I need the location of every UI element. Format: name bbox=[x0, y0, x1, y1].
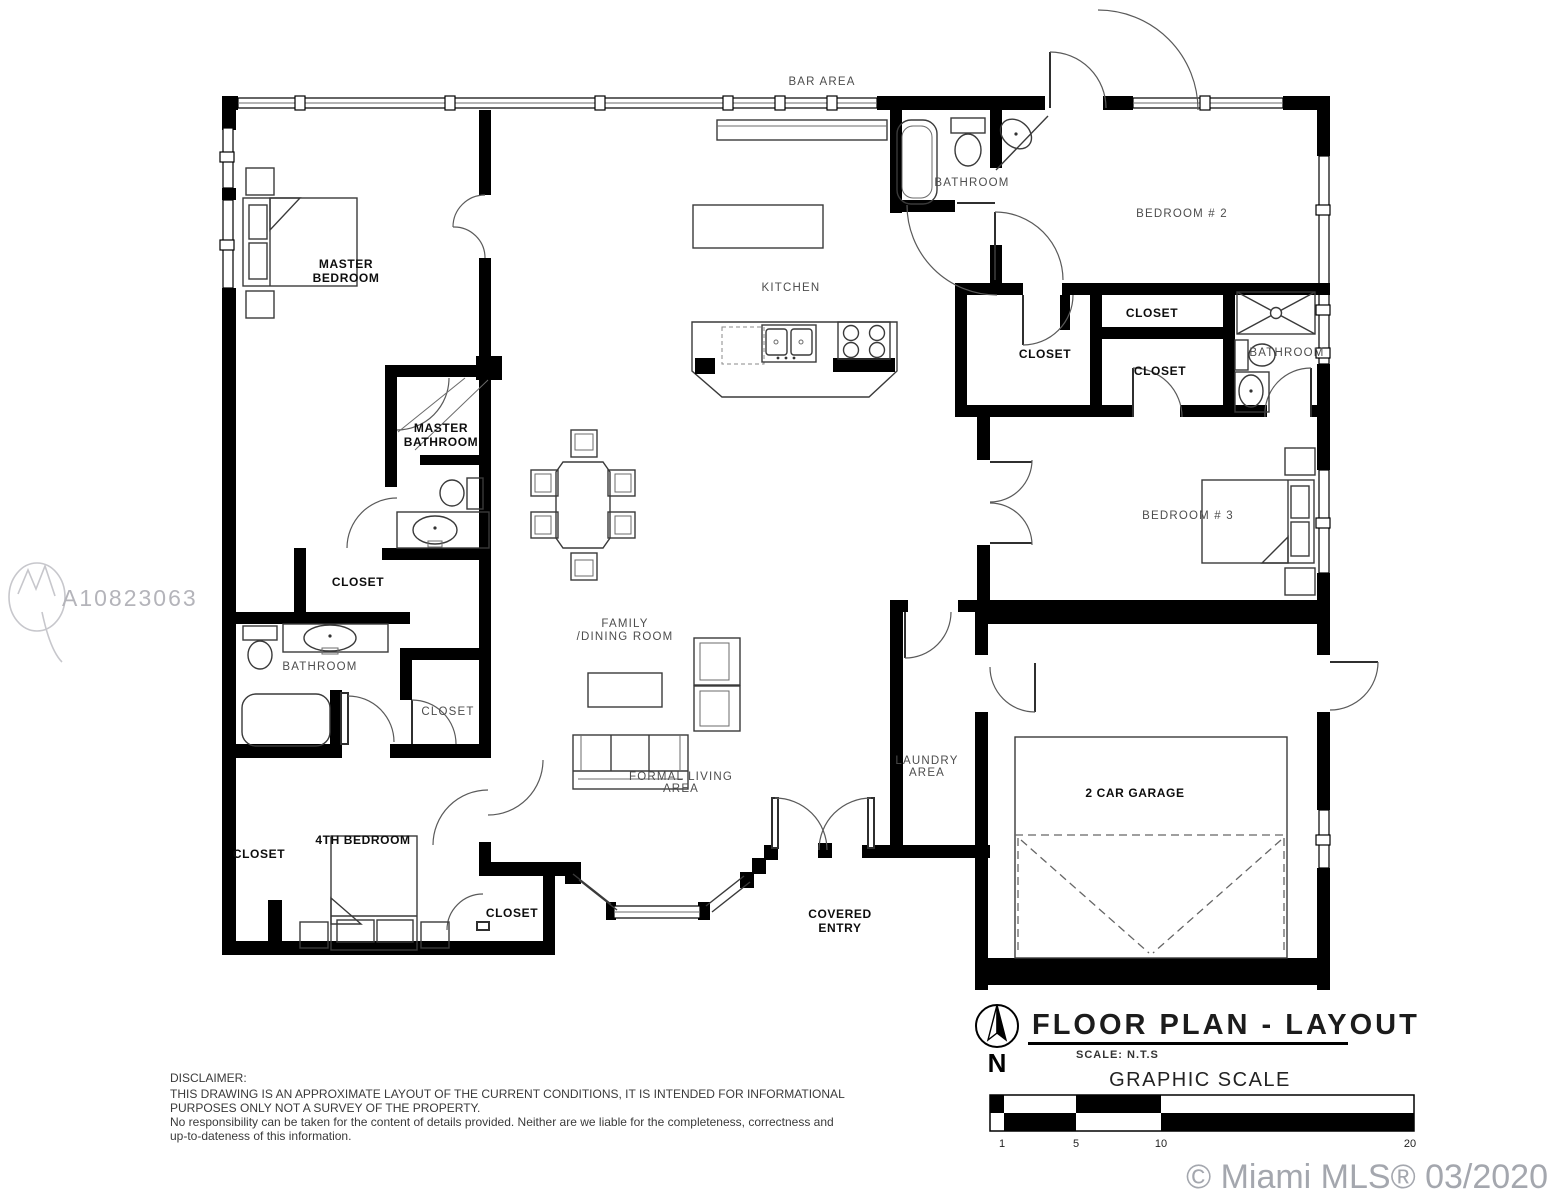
label-closet-mid: CLOSET bbox=[421, 706, 474, 718]
floor-plan-page: BAR AREA BATHROOM BEDROOM # 2 MASTER BED… bbox=[0, 0, 1553, 1200]
label-master-bathroom-2: BATHROOM bbox=[404, 435, 479, 449]
garage-slab bbox=[1015, 737, 1287, 958]
kitchen-counter bbox=[692, 322, 897, 397]
disclaimer-line-4: No responsibility can be taken for the c… bbox=[170, 1115, 834, 1129]
graphic-scale-title: GRAPHIC SCALE bbox=[1109, 1069, 1291, 1091]
mls-id-watermark: A10823063 bbox=[62, 585, 198, 611]
doors bbox=[341, 10, 1378, 930]
label-laundry-2: AREA bbox=[909, 767, 945, 779]
label-bar-area: BAR AREA bbox=[788, 76, 855, 88]
label-bathroom-right: BATHROOM bbox=[1249, 347, 1324, 359]
disclaimer-line-1: DISCLAIMER: bbox=[170, 1071, 247, 1085]
label-closet-hall-top: CLOSET bbox=[1126, 306, 1178, 320]
scale-tick-20: 20 bbox=[1404, 1138, 1416, 1150]
interior-walls bbox=[236, 108, 1330, 990]
label-covered-2: ENTRY bbox=[818, 921, 861, 935]
top-bathroom-fixtures bbox=[897, 113, 1048, 204]
north-label: N bbox=[988, 1048, 1007, 1078]
north-arrow bbox=[976, 1005, 1018, 1047]
drawing-title: FLOOR PLAN - LAYOUT bbox=[1032, 1009, 1420, 1041]
label-bathroom-left: BATHROOM bbox=[282, 661, 357, 673]
mls-watermark-logo bbox=[9, 563, 65, 662]
label-master-bathroom-1: MASTER bbox=[414, 421, 468, 435]
label-closet-bottom: CLOSET bbox=[486, 906, 538, 920]
label-closet-bottom-left: CLOSET bbox=[233, 847, 285, 861]
disclaimer-line-3: PURPOSES ONLY NOT A SURVEY OF THE PROPER… bbox=[170, 1101, 480, 1115]
label-closet-hall-left: CLOSET bbox=[1019, 347, 1071, 361]
bay-window bbox=[573, 874, 750, 920]
label-closet-hall-bottom: CLOSET bbox=[1134, 364, 1186, 378]
dining-table-set bbox=[531, 430, 635, 580]
label-family-1: FAMILY bbox=[601, 618, 648, 630]
label-covered-1: COVERED bbox=[808, 907, 872, 921]
disclaimer-line-2: THIS DRAWING IS AN APPROXIMATE LAYOUT OF… bbox=[170, 1087, 845, 1101]
label-garage: 2 CAR GARAGE bbox=[1085, 786, 1184, 800]
label-kitchen: KITCHEN bbox=[762, 282, 821, 294]
label-laundry-1: LAUNDRY bbox=[895, 755, 958, 767]
copyright-watermark: © Miami MLS® 03/2020 bbox=[1186, 1158, 1548, 1196]
bar-counter bbox=[717, 120, 887, 140]
label-bedroom-2: BEDROOM # 2 bbox=[1136, 208, 1228, 220]
disclaimer-line-5: up-to-dateness of this information. bbox=[170, 1129, 351, 1143]
label-family-2: /DINING ROOM bbox=[577, 631, 674, 643]
label-master-bedroom-1: MASTER bbox=[319, 257, 373, 271]
scale-tick-10: 10 bbox=[1155, 1138, 1167, 1150]
bedroom4-bed bbox=[300, 836, 449, 950]
label-master-bedroom-2: BEDROOM bbox=[313, 271, 380, 285]
scale-note: SCALE: N.T.S bbox=[1076, 1049, 1159, 1061]
scale-tick-5: 5 bbox=[1073, 1138, 1079, 1150]
scale-tick-1: 1 bbox=[999, 1138, 1005, 1150]
label-bedroom-3: BEDROOM # 3 bbox=[1142, 510, 1234, 522]
master-bed bbox=[243, 168, 357, 318]
kitchen-island bbox=[693, 205, 823, 248]
living-furniture bbox=[573, 638, 740, 789]
label-formal-2: AREA bbox=[663, 783, 699, 795]
label-bedroom-4: 4TH BEDROOM bbox=[315, 833, 410, 847]
title-underline bbox=[1028, 1042, 1348, 1045]
label-bathroom-top: BATHROOM bbox=[934, 177, 1009, 189]
left-bathroom-fixtures bbox=[242, 624, 388, 746]
label-formal-1: FORMAL LIVING bbox=[629, 771, 733, 783]
graphic-scale-bar bbox=[990, 1095, 1414, 1131]
label-closet-master: CLOSET bbox=[332, 575, 384, 589]
